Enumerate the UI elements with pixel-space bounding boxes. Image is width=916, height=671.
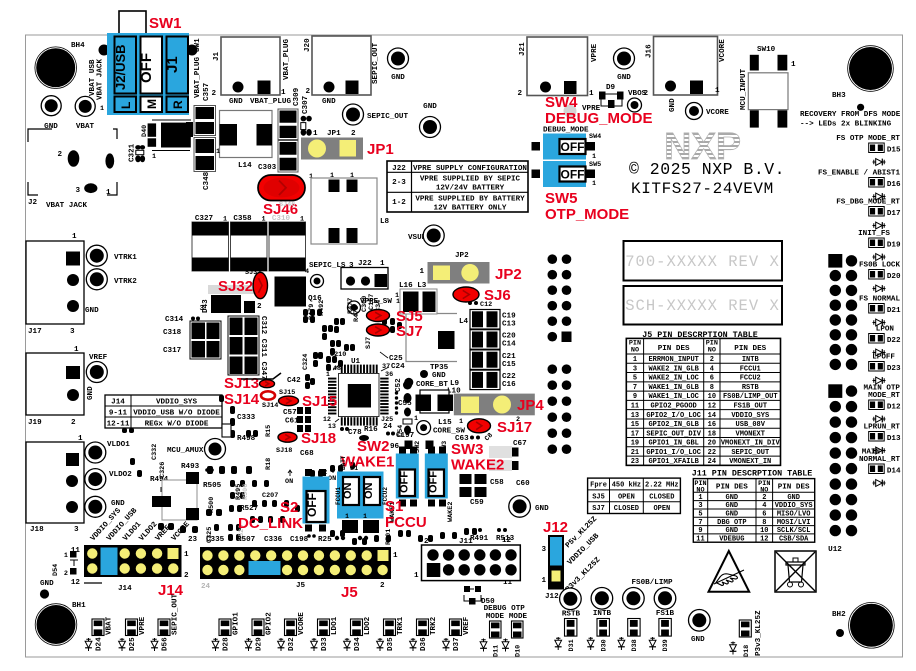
svg-text:C357: C357 [203,82,211,101]
svg-text:7: 7 [698,519,702,527]
svg-text:J22: J22 [392,165,406,173]
svg-text:WAKE1_IN_GLB: WAKE1_IN_GLB [648,384,699,392]
svg-text:D18: D18 [743,645,751,657]
svg-text:2: 2 [305,88,310,96]
svg-text:L: L [119,102,133,109]
svg-text:24: 24 [201,583,211,591]
svg-text:LDO2: LDO2 [364,616,372,635]
svg-text:1: 1 [300,216,304,224]
svg-text:L15: L15 [438,419,452,427]
svg-text:36: 36 [385,371,393,379]
svg-text:SEPIC_OUT: SEPIC_OUT [372,43,380,84]
svg-text:11: 11 [631,402,639,410]
svg-text:SW1: SW1 [194,38,202,52]
svg-text:DEBUG_MODE: DEBUG_MODE [543,127,589,135]
svg-text:ON: ON [285,478,293,486]
svg-text:1: 1 [414,415,418,423]
svg-text:DC_LINK: DC_LINK [238,515,303,532]
svg-text:S2: S2 [280,499,298,516]
svg-text:VPRE: VPRE [139,616,147,635]
svg-text:R15: R15 [265,425,273,437]
svg-text:C327: C327 [195,215,214,223]
svg-text:S1: S1 [385,498,403,515]
svg-text:FS NORMAL: FS NORMAL [859,296,900,304]
svg-text:D39: D39 [662,639,670,651]
svg-text:3: 3 [698,502,702,510]
svg-text:REGx W/O DIODE: REGx W/O DIODE [145,420,209,428]
svg-text:R: R [171,100,185,109]
svg-text:D35: D35 [387,637,395,651]
svg-text:1-2: 1-2 [392,199,406,207]
svg-text:GND: GND [423,103,437,111]
svg-text:VBAT: VBAT [106,616,114,635]
svg-text:LPOFF: LPOFF [872,354,895,362]
svg-text:D10: D10 [515,645,523,657]
svg-text:ON: ON [363,482,375,499]
svg-text:SEPIC_OUT: SEPIC_OUT [731,449,769,457]
svg-text:D19: D19 [887,241,901,249]
svg-text:FS1B_OUT: FS1B_OUT [733,402,767,410]
svg-text:D15: D15 [887,146,901,154]
svg-text:D37: D37 [453,637,461,651]
svg-text:C20: C20 [502,333,516,341]
svg-text:R18: R18 [265,458,273,470]
svg-text:2.22 MHz: 2.22 MHz [645,482,679,490]
svg-text:1: 1 [791,61,796,69]
svg-text:GPIO2_PGOOD: GPIO2_PGOOD [651,402,697,410]
svg-text:SCLK/SCL: SCLK/SCL [777,527,811,535]
svg-text:C303: C303 [258,164,277,172]
svg-text:C14: C14 [502,341,516,349]
svg-text:96: 96 [390,443,400,451]
svg-text:2: 2 [211,90,216,98]
svg-text:D20: D20 [887,273,901,281]
svg-text:SW5: SW5 [545,190,578,207]
svg-text:VDDIO_USB W/O DIODE: VDDIO_USB W/O DIODE [133,409,220,417]
svg-text:OFF: OFF [561,168,585,182]
svg-text:VMONEXT_IN_DIV: VMONEXT_IN_DIV [721,440,781,448]
svg-text:D11: D11 [493,645,501,657]
svg-text:C307: C307 [302,95,310,114]
svg-text:21: 21 [631,449,639,457]
svg-text:3: 3 [70,328,75,336]
svg-text:GND: GND [85,307,99,315]
svg-text:SW2: SW2 [357,438,390,455]
svg-text:GND: GND [726,527,739,535]
svg-text:R505: R505 [203,482,222,490]
svg-text:C15: C15 [502,361,516,369]
svg-text:C13: C13 [502,321,516,329]
svg-text:BH3: BH3 [832,92,846,100]
svg-text:D33: D33 [321,637,329,651]
svg-text:MODE: MODE [509,613,528,621]
svg-text:ERRMON_INPUT: ERRMON_INPUT [648,356,698,364]
svg-text:VBAT_PLUG: VBAT_PLUG [194,57,202,98]
svg-text:OPEN: OPEN [653,505,670,513]
svg-text:R498: R498 [237,435,256,443]
svg-text:C67: C67 [513,440,527,448]
svg-text:--> LEDs 2x BLINKING: --> LEDs 2x BLINKING [800,121,892,129]
svg-text:J2: J2 [28,199,38,207]
svg-text:VMONEXT_IN: VMONEXT_IN [729,458,771,466]
svg-text:C61: C61 [285,418,299,426]
svg-text:WAKE2_IN_LOC: WAKE2_IN_LOC [648,375,698,383]
svg-text:LPRUN_RT: LPRUN_RT [864,424,901,432]
svg-text:GND: GND [87,386,95,400]
svg-text:13: 13 [631,412,639,420]
svg-text:GPIO1_IN_GBL: GPIO1_IN_GBL [648,440,698,448]
svg-text:2: 2 [517,90,522,98]
svg-text:RSTB: RSTB [742,384,760,392]
svg-text:FS0B/LIMP: FS0B/LIMP [631,579,672,587]
svg-text:GND: GND [691,636,705,644]
svg-text:18: 18 [708,430,716,438]
svg-text:NO: NO [631,347,639,355]
svg-text:1: 1 [74,346,79,354]
svg-text:1: 1 [459,418,463,426]
svg-text:J12: J12 [545,593,559,601]
svg-text:MOSI/LVI: MOSI/LVI [777,519,811,527]
svg-text:FCCU2: FCCU2 [740,375,761,383]
svg-text:D36: D36 [420,637,428,651]
svg-text:SJ32: SJ32 [218,278,253,295]
svg-text:D56: D56 [162,637,170,651]
svg-text:TP35: TP35 [430,364,449,372]
svg-text:R507: R507 [237,536,256,544]
svg-text:11: 11 [696,535,704,543]
svg-text:J22: J22 [358,260,372,268]
svg-text:C332: C332 [151,444,159,460]
svg-text:2: 2 [643,90,648,98]
svg-text:14: 14 [708,412,716,420]
svg-text:M: M [145,99,159,109]
svg-text:GND: GND [40,580,54,588]
svg-text:SW4: SW4 [545,94,578,111]
svg-text:FS0B LOCK: FS0B LOCK [859,262,900,270]
svg-text:D54: D54 [52,564,60,576]
svg-text:1: 1 [393,552,398,560]
svg-text:R26: R26 [366,528,378,536]
svg-text:C309: C309 [293,87,301,106]
svg-text:C21: C21 [502,353,516,361]
svg-text:U1: U1 [351,358,361,366]
svg-text:J5: J5 [341,584,358,601]
svg-text:SEPIC_OUT: SEPIC_OUT [367,113,408,121]
svg-text:FS_ENABLE / ABIST1: FS_ENABLE / ABIST1 [818,170,900,178]
svg-text:C348: C348 [203,171,211,190]
svg-text:9-11: 9-11 [109,409,128,417]
svg-text:1: 1 [100,105,104,113]
svg-text:R493: R493 [181,463,200,471]
svg-text:SJ7: SJ7 [365,337,373,349]
svg-text:12: 12 [502,537,512,545]
svg-text:24: 24 [383,423,393,431]
svg-text:RECOVERY FROM DFS MODE: RECOVERY FROM DFS MODE [800,111,901,119]
svg-text:TRK2: TRK2 [430,616,438,635]
svg-text:R500: R500 [208,497,216,513]
svg-text:OTP: OTP [511,605,525,613]
svg-text:WAKE2_IN_GLB: WAKE2_IN_GLB [648,365,699,373]
svg-text:SJ5: SJ5 [592,493,605,501]
svg-text:1: 1 [589,90,594,98]
svg-text:D30: D30 [600,639,608,651]
svg-text:C310: C310 [272,215,291,223]
svg-text:BATT: BATT [340,455,347,470]
svg-text:J16: J16 [646,44,654,58]
svg-text:12: 12 [760,535,768,543]
svg-text:R527: R527 [240,505,259,513]
svg-text:3: 3 [199,305,204,313]
svg-text:OTP_MODE: OTP_MODE [545,206,629,223]
svg-text:23: 23 [631,458,639,466]
svg-text:J17: J17 [28,328,42,336]
svg-text:VBAT_PLUG: VBAT_PLUG [250,98,291,106]
svg-text:D31: D31 [568,639,576,651]
svg-text:2: 2 [351,130,356,138]
svg-text:VTRK1: VTRK1 [114,254,137,262]
svg-text:TRK1: TRK1 [397,616,405,635]
svg-text:ON: ON [342,482,354,499]
svg-text:15: 15 [631,421,639,429]
svg-text:CORE_BT: CORE_BT [416,381,448,389]
svg-text:GND: GND [391,74,405,82]
svg-text:LPON: LPON [876,326,895,334]
svg-text:WAKE2: WAKE2 [451,457,504,474]
svg-text:24: 24 [708,458,716,466]
svg-text:19: 19 [631,440,639,448]
svg-text:GND: GND [44,123,58,131]
svg-text:C326: C326 [159,462,167,478]
svg-text:12V BATTERY ONLY: 12V BATTERY ONLY [434,205,507,213]
svg-text:NO: NO [708,347,716,355]
svg-text:2: 2 [380,582,385,590]
svg-text:J20: J20 [304,38,312,52]
svg-text:C68: C68 [300,450,314,458]
svg-text:GND: GND [669,98,677,112]
svg-text:C24: C24 [391,363,405,371]
svg-text:8: 8 [710,384,714,392]
svg-text:D23: D23 [887,365,901,373]
svg-text:R506: R506 [242,484,250,500]
svg-text:R492: R492 [318,300,326,316]
svg-text:D13: D13 [887,435,901,443]
svg-text:J1: J1 [164,56,181,73]
svg-text:1: 1 [541,577,546,585]
svg-text:GPIO2_IN_GLB: GPIO2_IN_GLB [648,421,699,429]
svg-text:C78: C78 [348,429,362,437]
svg-text:J21: J21 [519,42,527,56]
svg-text:C198: C198 [290,536,309,544]
svg-text:SJ46: SJ46 [279,201,295,209]
svg-text:L4: L4 [459,318,469,326]
svg-text:SJ14: SJ14 [224,391,260,408]
svg-text:9: 9 [633,393,637,401]
svg-text:3: 3 [75,187,80,195]
svg-text:GPIO1_I/O_LOC: GPIO1_I/O_LOC [646,449,701,457]
svg-text:3: 3 [74,526,79,534]
svg-text:J2/USB: J2/USB [113,44,128,90]
svg-text:MCU_INPUT: MCU_INPUT [740,69,748,110]
svg-text:CLOSED: CLOSED [614,505,639,513]
svg-text:VDDIO_SYS: VDDIO_SYS [731,412,769,420]
svg-text:J14: J14 [118,585,132,593]
svg-text:GND: GND [432,372,446,380]
svg-text:DEBUG: DEBUG [484,605,507,613]
svg-text:VPRE SUPPLIED BY BATTERY: VPRE SUPPLIED BY BATTERY [415,196,525,204]
svg-text:SW3: SW3 [451,441,484,458]
svg-text:GND: GND [726,510,739,518]
svg-text:1: 1 [419,268,424,276]
svg-text:OFF: OFF [138,53,155,83]
svg-text:9: 9 [698,527,702,535]
svg-text:VBAT_PLUG: VBAT_PLUG [283,39,291,80]
svg-text:C57: C57 [283,409,297,417]
svg-text:GPIO1_XFAILB: GPIO1_XFAILB [648,458,699,466]
svg-text:VCORE: VCORE [706,109,729,117]
svg-text:1: 1 [78,435,83,443]
svg-text:SEPIC_OUT: SEPIC_OUT [172,594,180,635]
svg-text:1: 1 [363,513,367,521]
svg-text:CLOSED: CLOSED [649,493,674,501]
svg-text:SJ13: SJ13 [224,375,259,392]
svg-text:VREF: VREF [89,354,108,362]
svg-text:GND: GND [535,505,549,513]
svg-text:SW4: SW4 [589,133,601,141]
svg-text:JP1: JP1 [327,130,341,138]
svg-text:700-XXXXX REV X: 700-XXXXX REV X [625,253,780,271]
svg-text:4: 4 [762,502,766,510]
svg-text:USB_08V: USB_08V [736,421,766,429]
svg-text:C210: C210 [330,351,346,359]
svg-text:C318: C318 [163,329,182,337]
svg-text:WAKE2: WAKE2 [447,502,455,522]
svg-text:C317: C317 [163,347,182,355]
svg-text:FCCU: FCCU [385,514,427,531]
svg-text:8: 8 [762,519,766,527]
svg-text:C58: C58 [490,479,504,487]
svg-text:Fpre: Fpre [590,482,607,490]
svg-text:12: 12 [708,402,716,410]
svg-text:5: 5 [633,375,637,383]
svg-text:2-3: 2-3 [392,179,406,187]
svg-text:PIN DES: PIN DES [716,484,748,492]
svg-text:JP1: JP1 [367,141,394,158]
svg-text:VLDO1: VLDO1 [107,441,130,449]
svg-text:JP2: JP2 [455,252,469,260]
svg-text:PIN DES: PIN DES [778,484,810,492]
svg-text:GND: GND [229,98,243,106]
svg-text:12-11: 12-11 [107,420,130,428]
svg-text:D17: D17 [887,210,901,218]
svg-text:C197: C197 [396,432,415,440]
svg-text:12V/24V BATTERY: 12V/24V BATTERY [436,185,505,193]
svg-text:PIN DES: PIN DES [658,345,690,353]
svg-text:D12: D12 [887,403,901,411]
svg-text:C42: C42 [287,377,301,385]
svg-text:FS_DBG_MODE_RT: FS_DBG_MODE_RT [836,199,900,207]
svg-text:2: 2 [184,572,189,580]
svg-text:12: 12 [71,579,81,587]
svg-text:C16: C16 [502,381,516,389]
svg-text:GND: GND [787,494,800,502]
svg-text:1: 1 [262,216,266,224]
svg-text:MISO/LVO: MISO/LVO [777,510,811,518]
svg-text:BH2: BH2 [832,611,846,619]
svg-text:J19: J19 [28,419,42,427]
svg-text:16: 16 [708,421,716,429]
svg-text:C52: C52 [395,378,403,392]
svg-text:R25: R25 [318,536,332,544]
svg-text:J1: J1 [213,51,221,61]
svg-text:2: 2 [71,419,76,427]
svg-text:D34: D34 [354,637,362,651]
svg-text:SW1: SW1 [149,15,182,32]
svg-text:1: 1 [592,180,596,188]
svg-text:C333: C333 [237,414,256,422]
svg-text:J12: J12 [543,519,568,536]
svg-text:1: 1 [106,189,111,197]
svg-text:L8: L8 [380,218,390,226]
svg-text:GND: GND [726,494,739,502]
svg-text:INTB: INTB [742,356,760,364]
svg-text:7: 7 [633,384,637,392]
svg-text:1: 1 [326,371,330,379]
svg-text:C324: C324 [302,354,310,370]
svg-text:2: 2 [710,356,714,364]
svg-text:OFF: OFF [428,471,440,493]
svg-text:2: 2 [64,570,68,578]
svg-text:1: 1 [414,572,419,580]
svg-text:BH1: BH1 [72,602,86,610]
svg-text:SJ17: SJ17 [497,419,532,436]
svg-text:FS OTP MODE_RT: FS OTP MODE_RT [836,135,900,143]
svg-text:L14: L14 [238,162,252,170]
svg-text:23: 23 [188,536,198,544]
svg-text:VLDO2: VLDO2 [109,471,132,479]
svg-text:1: 1 [633,356,637,364]
svg-text:VPRE: VPRE [591,43,599,62]
svg-text:© 2025 NXP B.V.: © 2025 NXP B.V. [629,160,785,179]
svg-text:GPIO2: GPIO2 [266,612,274,635]
svg-text:VPRE SUPPLY CONFIGURATION: VPRE SUPPLY CONFIGURATION [413,165,527,173]
svg-text:GND: GND [617,74,631,82]
svg-text:D24: D24 [96,637,104,651]
svg-text:6: 6 [710,375,714,383]
svg-text:1: 1 [313,130,318,138]
svg-text:SJ18: SJ18 [276,447,292,455]
svg-text:D29: D29 [256,637,264,651]
svg-text:CSB/SDA: CSB/SDA [779,535,809,543]
svg-text:OFF: OFF [305,493,319,517]
svg-text:C22: C22 [502,373,516,381]
svg-text:RSTB: RSTB [562,611,581,619]
svg-text:10: 10 [760,527,768,535]
svg-text:SW10: SW10 [757,46,776,54]
svg-text:C312 C311 C347: C312 C311 C347 [259,316,267,380]
svg-text:1: 1 [184,551,189,559]
svg-text:D14: D14 [887,467,901,475]
svg-text:17: 17 [631,430,639,438]
svg-text:VDDIO_SYS: VDDIO_SYS [156,398,197,406]
svg-text:1: 1 [350,172,354,180]
svg-text:2: 2 [57,151,62,159]
svg-text:450 kHz: 450 kHz [612,482,641,490]
svg-text:JP2: JP2 [495,266,522,283]
svg-text:VPRE SUPPLIED BY SEPIC: VPRE SUPPLIED BY SEPIC [420,176,521,184]
svg-text:GND: GND [322,98,336,106]
svg-text:C19: C19 [502,313,516,321]
svg-text:R501: R501 [385,529,393,545]
